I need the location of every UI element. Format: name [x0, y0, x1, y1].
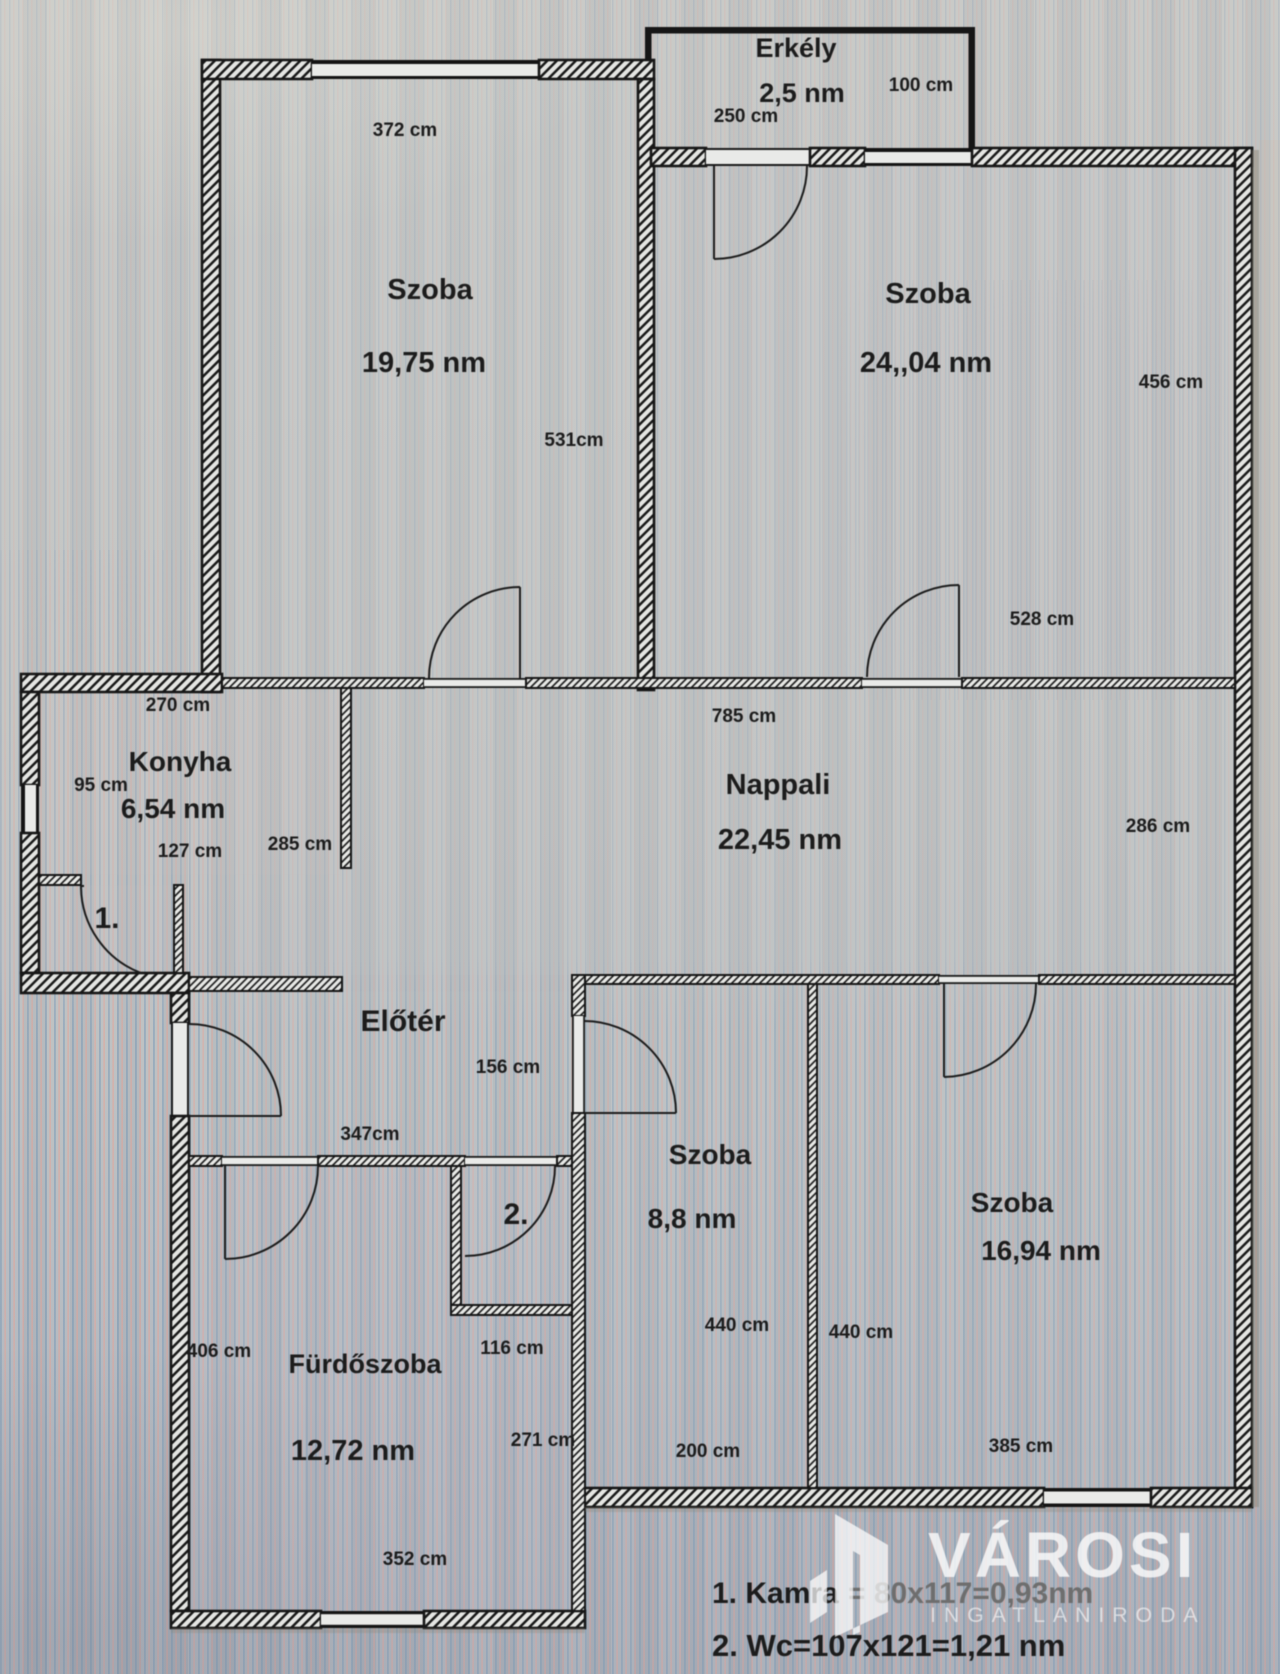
svg-text:Fürdőszoba: Fürdőszoba [289, 1349, 443, 1379]
svg-text:VÁROSI: VÁROSI [928, 1519, 1197, 1591]
svg-text:Előtér: Előtér [360, 1005, 445, 1038]
svg-text:785 cm: 785 cm [712, 706, 776, 727]
svg-text:385 cm: 385 cm [989, 1436, 1053, 1457]
svg-text:12,72 nm: 12,72 nm [291, 1435, 415, 1467]
svg-text:Konyha: Konyha [129, 746, 232, 777]
svg-text:156 cm: 156 cm [476, 1057, 540, 1078]
svg-text:372 cm: 372 cm [373, 120, 437, 141]
svg-text:531cm: 531cm [544, 430, 603, 451]
svg-text:271 cm: 271 cm [511, 1430, 575, 1451]
svg-text:406 cm: 406 cm [187, 1341, 251, 1362]
svg-text:270 cm: 270 cm [146, 695, 210, 716]
svg-text:INGATLANIRODA: INGATLANIRODA [930, 1603, 1205, 1627]
svg-text:528 cm: 528 cm [1010, 609, 1074, 630]
svg-text:2. Wc=107x121=1,21 nm: 2. Wc=107x121=1,21 nm [712, 1628, 1065, 1663]
svg-text:127 cm: 127 cm [158, 841, 222, 862]
svg-text:200 cm: 200 cm [676, 1441, 740, 1462]
svg-text:24,,04 nm: 24,,04 nm [860, 347, 992, 379]
svg-text:22,45 nm: 22,45 nm [718, 824, 842, 856]
svg-text:16,94 nm: 16,94 nm [981, 1235, 1101, 1266]
svg-text:2,5 nm: 2,5 nm [759, 78, 845, 108]
svg-text:6,54 nm: 6,54 nm [121, 793, 225, 824]
svg-text:8,8 nm: 8,8 nm [648, 1203, 737, 1234]
svg-text:Szoba: Szoba [387, 274, 473, 306]
svg-text:1.: 1. [94, 902, 119, 935]
svg-text:19,75 nm: 19,75 nm [362, 347, 486, 379]
svg-text:Szoba: Szoba [885, 278, 971, 310]
svg-text:347cm: 347cm [340, 1124, 399, 1145]
svg-text:Nappali: Nappali [726, 769, 831, 801]
svg-text:250 cm: 250 cm [714, 106, 778, 127]
svg-text:2.: 2. [503, 1198, 528, 1231]
svg-text:352 cm: 352 cm [383, 1549, 447, 1570]
svg-text:Erkély: Erkély [755, 33, 836, 63]
svg-text:440 cm: 440 cm [705, 1315, 769, 1336]
svg-text:456 cm: 456 cm [1139, 372, 1203, 393]
svg-text:116 cm: 116 cm [480, 1338, 543, 1359]
svg-text:100 cm: 100 cm [889, 75, 953, 96]
svg-text:285 cm: 285 cm [268, 834, 332, 855]
svg-text:95 cm: 95 cm [74, 775, 128, 796]
svg-text:Szoba: Szoba [971, 1187, 1054, 1218]
svg-text:286 cm: 286 cm [1126, 816, 1190, 837]
svg-text:Szoba: Szoba [669, 1139, 752, 1170]
svg-text:440 cm: 440 cm [829, 1322, 893, 1343]
